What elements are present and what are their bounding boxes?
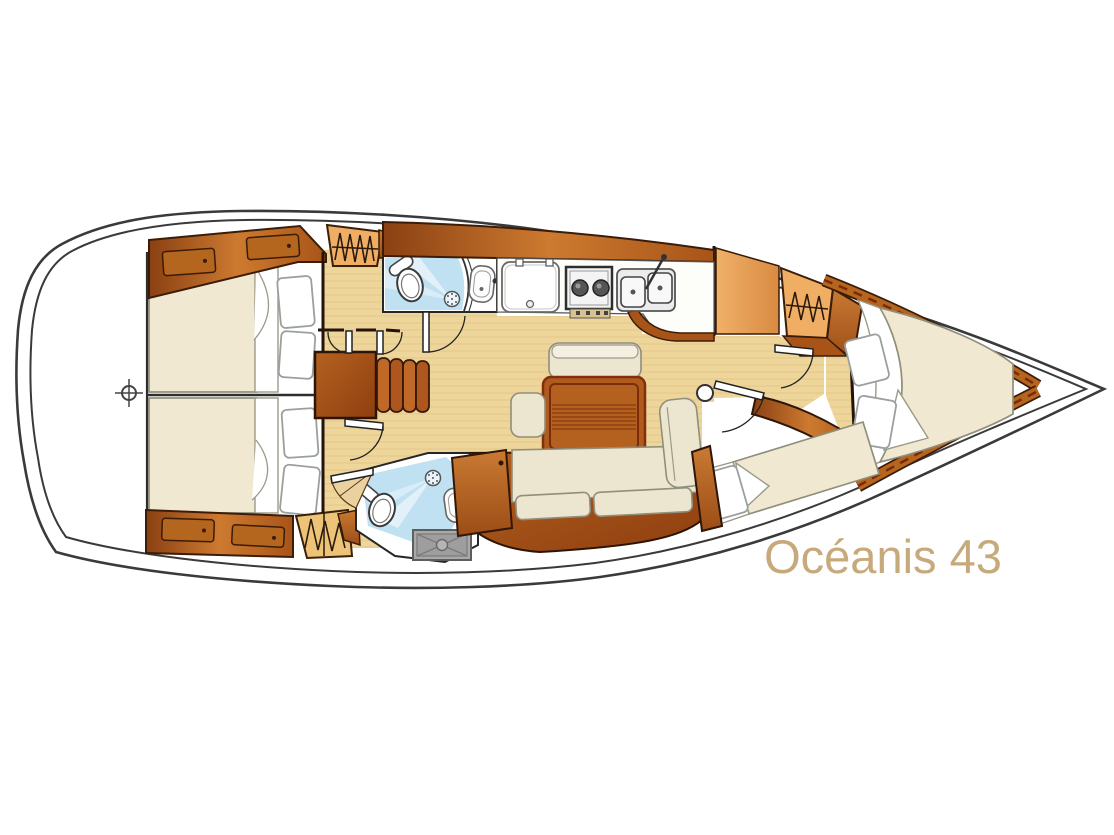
salon-stool [511,393,545,437]
pillow [281,408,318,458]
head-wood-door-panel [452,450,512,536]
companionway-steps [315,352,429,418]
step-landing [315,352,376,418]
mattress-bottom [149,398,257,513]
bulkhead-panel [716,248,779,334]
hanging-locker-top [327,225,383,266]
shower-drain-icon [445,292,460,307]
sofa-seat-cushion [515,492,590,520]
aft-shelf-bottom [146,510,293,557]
pillow [278,331,315,379]
sofa-seat-cushion [593,487,692,516]
icebox-latch [516,259,523,266]
table-leaf-slats [552,405,636,429]
icebox-latch [546,259,553,266]
drawer [162,248,216,276]
burner [593,280,609,296]
pillow [280,464,321,516]
door-handle [499,461,504,466]
icebox [502,259,559,312]
head-top [383,254,505,312]
step [403,360,416,412]
shower-drain-icon [426,471,441,486]
aft-cabin-bed-bottom [149,398,278,513]
step [390,359,403,412]
stove-icon [566,267,612,318]
partition-top [318,330,400,331]
pedestal-light-icon [697,385,713,401]
boat-floor-plan: Océanis 43 [0,0,1114,835]
yacht-layout-page: Océanis 43 [0,0,1114,835]
pillow [277,276,315,329]
step [377,358,390,412]
model-title: Océanis 43 [764,530,1002,583]
sink-basin-icon [468,265,496,303]
burner [572,280,588,296]
icebox-drain [527,301,534,308]
drawer [246,234,299,260]
bench-headrest [552,345,638,358]
step [416,361,429,412]
drawer [232,525,285,548]
drawer [162,518,215,542]
salon-table [543,377,645,456]
